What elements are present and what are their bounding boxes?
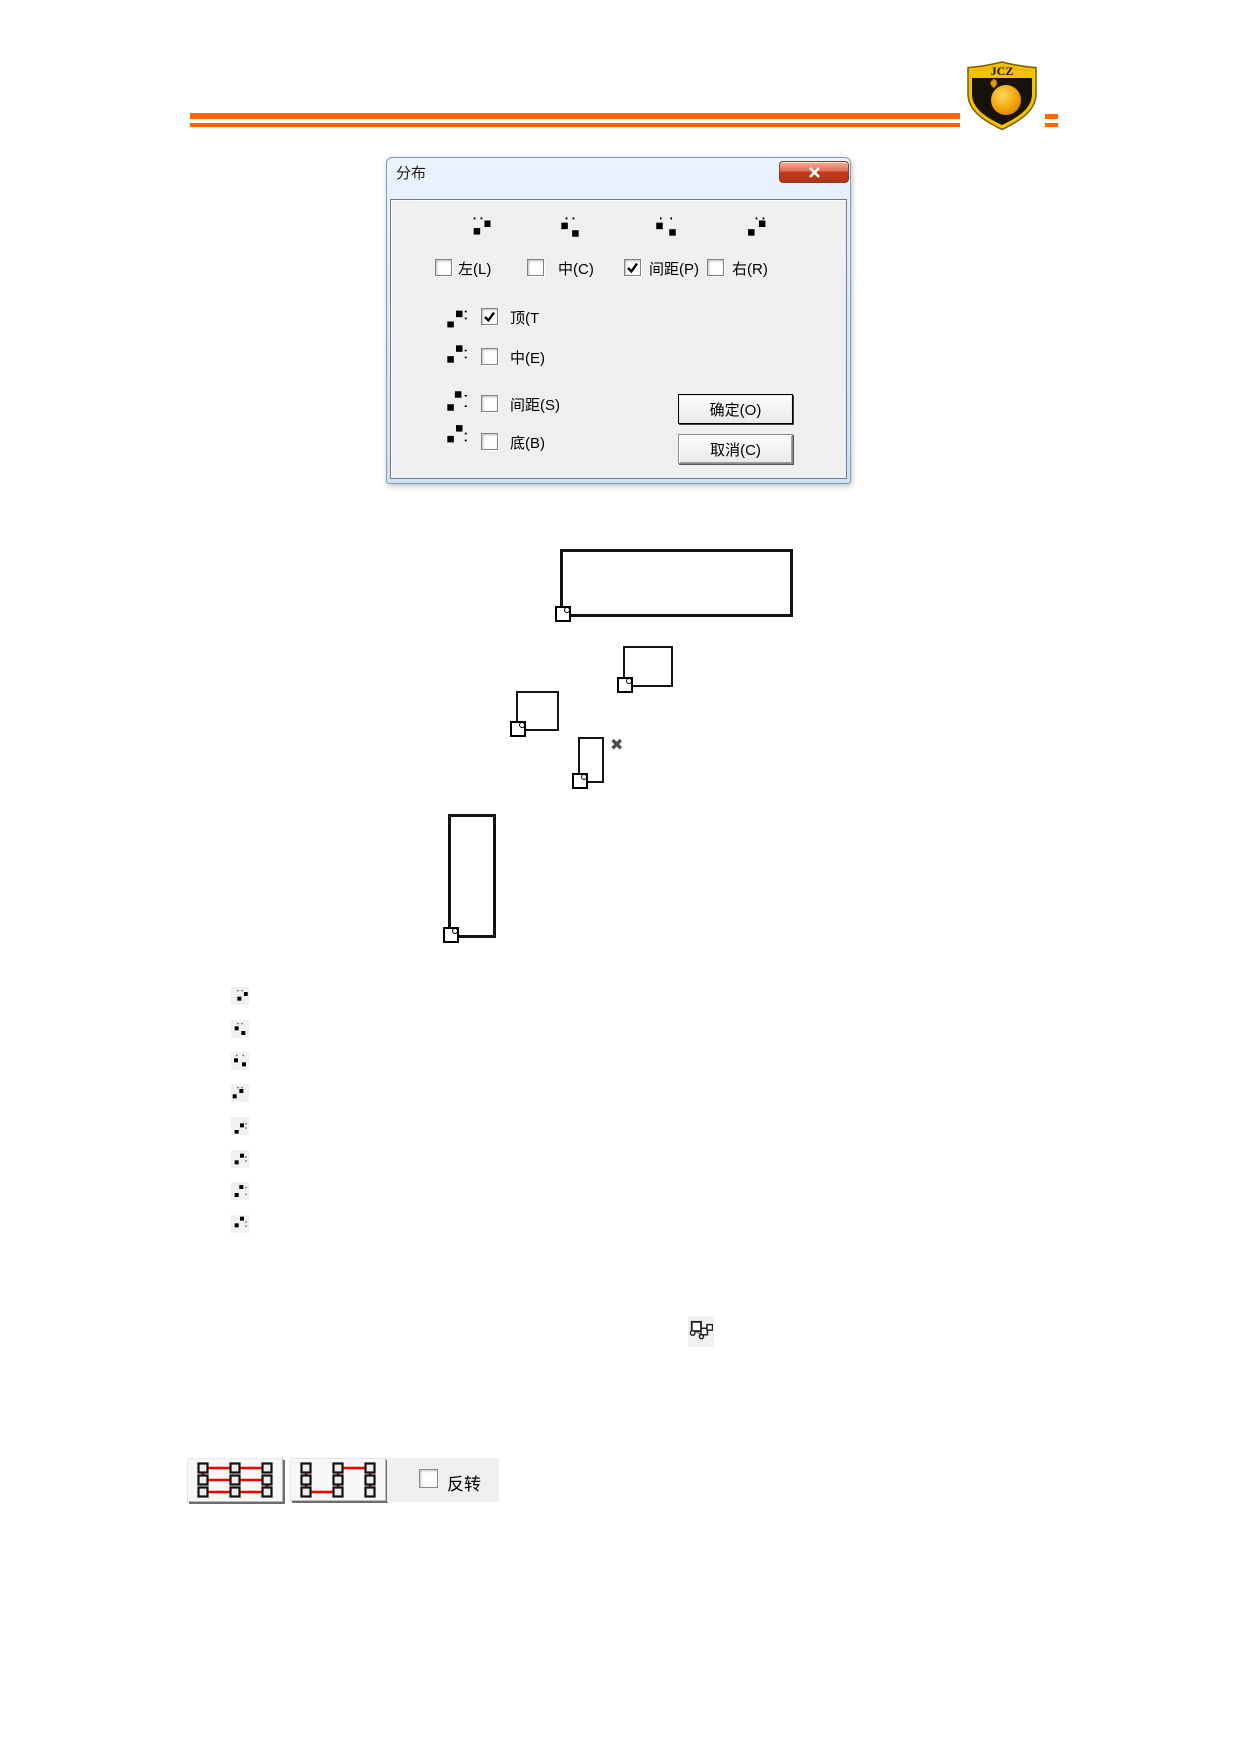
logo-text: JCZ xyxy=(991,64,1014,78)
distribute-dialog: 分布 左(L) 中(C) 间距(P) 右(R) xyxy=(386,157,851,484)
checkbox-vcenter-label: 中(E) xyxy=(510,347,545,368)
distribute-vspacing-icon xyxy=(443,388,469,414)
origin-handle xyxy=(510,721,526,737)
origin-handle xyxy=(617,677,633,693)
checkbox-vspacing[interactable] xyxy=(481,395,498,412)
ok-button[interactable]: 确定(O) xyxy=(678,394,793,424)
illustration-rect-tall xyxy=(448,814,496,938)
header-rule-stub-thick xyxy=(1045,114,1058,119)
checkbox-left-label: 左(L) xyxy=(458,258,491,279)
distribute-hcenter-icon xyxy=(557,212,583,242)
serpentine-horizontal-button[interactable] xyxy=(187,1458,283,1502)
distribute-top-icon xyxy=(443,302,469,328)
checkbox-bottom[interactable] xyxy=(481,433,498,450)
jcz-logo: JCZ xyxy=(963,61,1041,131)
distribute-left-icon xyxy=(231,987,249,1005)
illustration-rect-medium xyxy=(623,646,673,687)
illustration-rect-small xyxy=(578,737,604,783)
distribute-hcenter-icon xyxy=(231,1020,249,1038)
checkbox-right[interactable] xyxy=(707,259,724,276)
checkbox-left[interactable] xyxy=(435,259,452,276)
serpentine-vertical-icon xyxy=(296,1462,380,1498)
origin-handle xyxy=(572,773,588,789)
header-rule-thin xyxy=(190,123,960,127)
header-rule-thick xyxy=(190,113,960,119)
distribute-hspacing-icon xyxy=(653,212,679,242)
checkbox-top[interactable] xyxy=(481,308,498,325)
checkbox-hspacing[interactable] xyxy=(624,259,641,276)
shield-icon: JCZ xyxy=(963,61,1041,131)
header-rule-stub-thin xyxy=(1045,123,1058,127)
checkbox-hcenter-label: 中(C) xyxy=(558,258,594,279)
object-nesting-icon xyxy=(688,1316,714,1347)
delete-mark: ✖ xyxy=(610,735,623,755)
origin-handle xyxy=(555,606,571,622)
checkbox-vcenter[interactable] xyxy=(481,348,498,365)
distribute-vcenter-icon xyxy=(231,1150,249,1168)
distribute-vspacing-icon xyxy=(231,1182,249,1200)
dialog-body: 左(L) 中(C) 间距(P) 右(R) 顶(T 中(E) 间距(S xyxy=(390,199,847,479)
manual-page: JCZ 分布 左(L) 中(C) 间距(P) xyxy=(0,0,1240,1754)
checkbox-hspacing-label: 间距(P) xyxy=(649,258,699,279)
serpentine-horizontal-icon xyxy=(193,1462,277,1498)
checkbox-vspacing-label: 间距(S) xyxy=(510,394,560,415)
distribute-bottom-icon xyxy=(443,424,469,450)
distribute-vcenter-icon xyxy=(443,341,469,367)
cancel-button[interactable]: 取消(C) xyxy=(678,434,793,464)
dialog-title: 分布 xyxy=(396,162,426,183)
invert-panel: 反转 xyxy=(387,1458,499,1502)
checkbox-bottom-label: 底(B) xyxy=(510,432,545,453)
distribute-hspacing-icon xyxy=(231,1052,249,1070)
distribute-bottom-icon xyxy=(231,1215,249,1233)
checkbox-top-label: 顶(T xyxy=(510,307,539,328)
illustration-rect-wide xyxy=(560,549,793,617)
close-button[interactable] xyxy=(779,161,849,183)
serpentine-vertical-button[interactable] xyxy=(290,1458,386,1501)
distribute-right-icon xyxy=(747,212,773,242)
checkbox-hcenter[interactable] xyxy=(527,259,544,276)
checkbox-right-label: 右(R) xyxy=(732,258,768,279)
close-icon xyxy=(808,167,821,178)
distribute-left-icon xyxy=(465,212,491,242)
invert-label: 反转 xyxy=(447,1470,481,1495)
origin-handle xyxy=(443,927,459,943)
distribute-right-icon xyxy=(231,1084,249,1102)
illustration-rect-square xyxy=(516,691,559,731)
invert-checkbox[interactable] xyxy=(419,1469,438,1488)
distribute-top-icon xyxy=(231,1117,249,1135)
